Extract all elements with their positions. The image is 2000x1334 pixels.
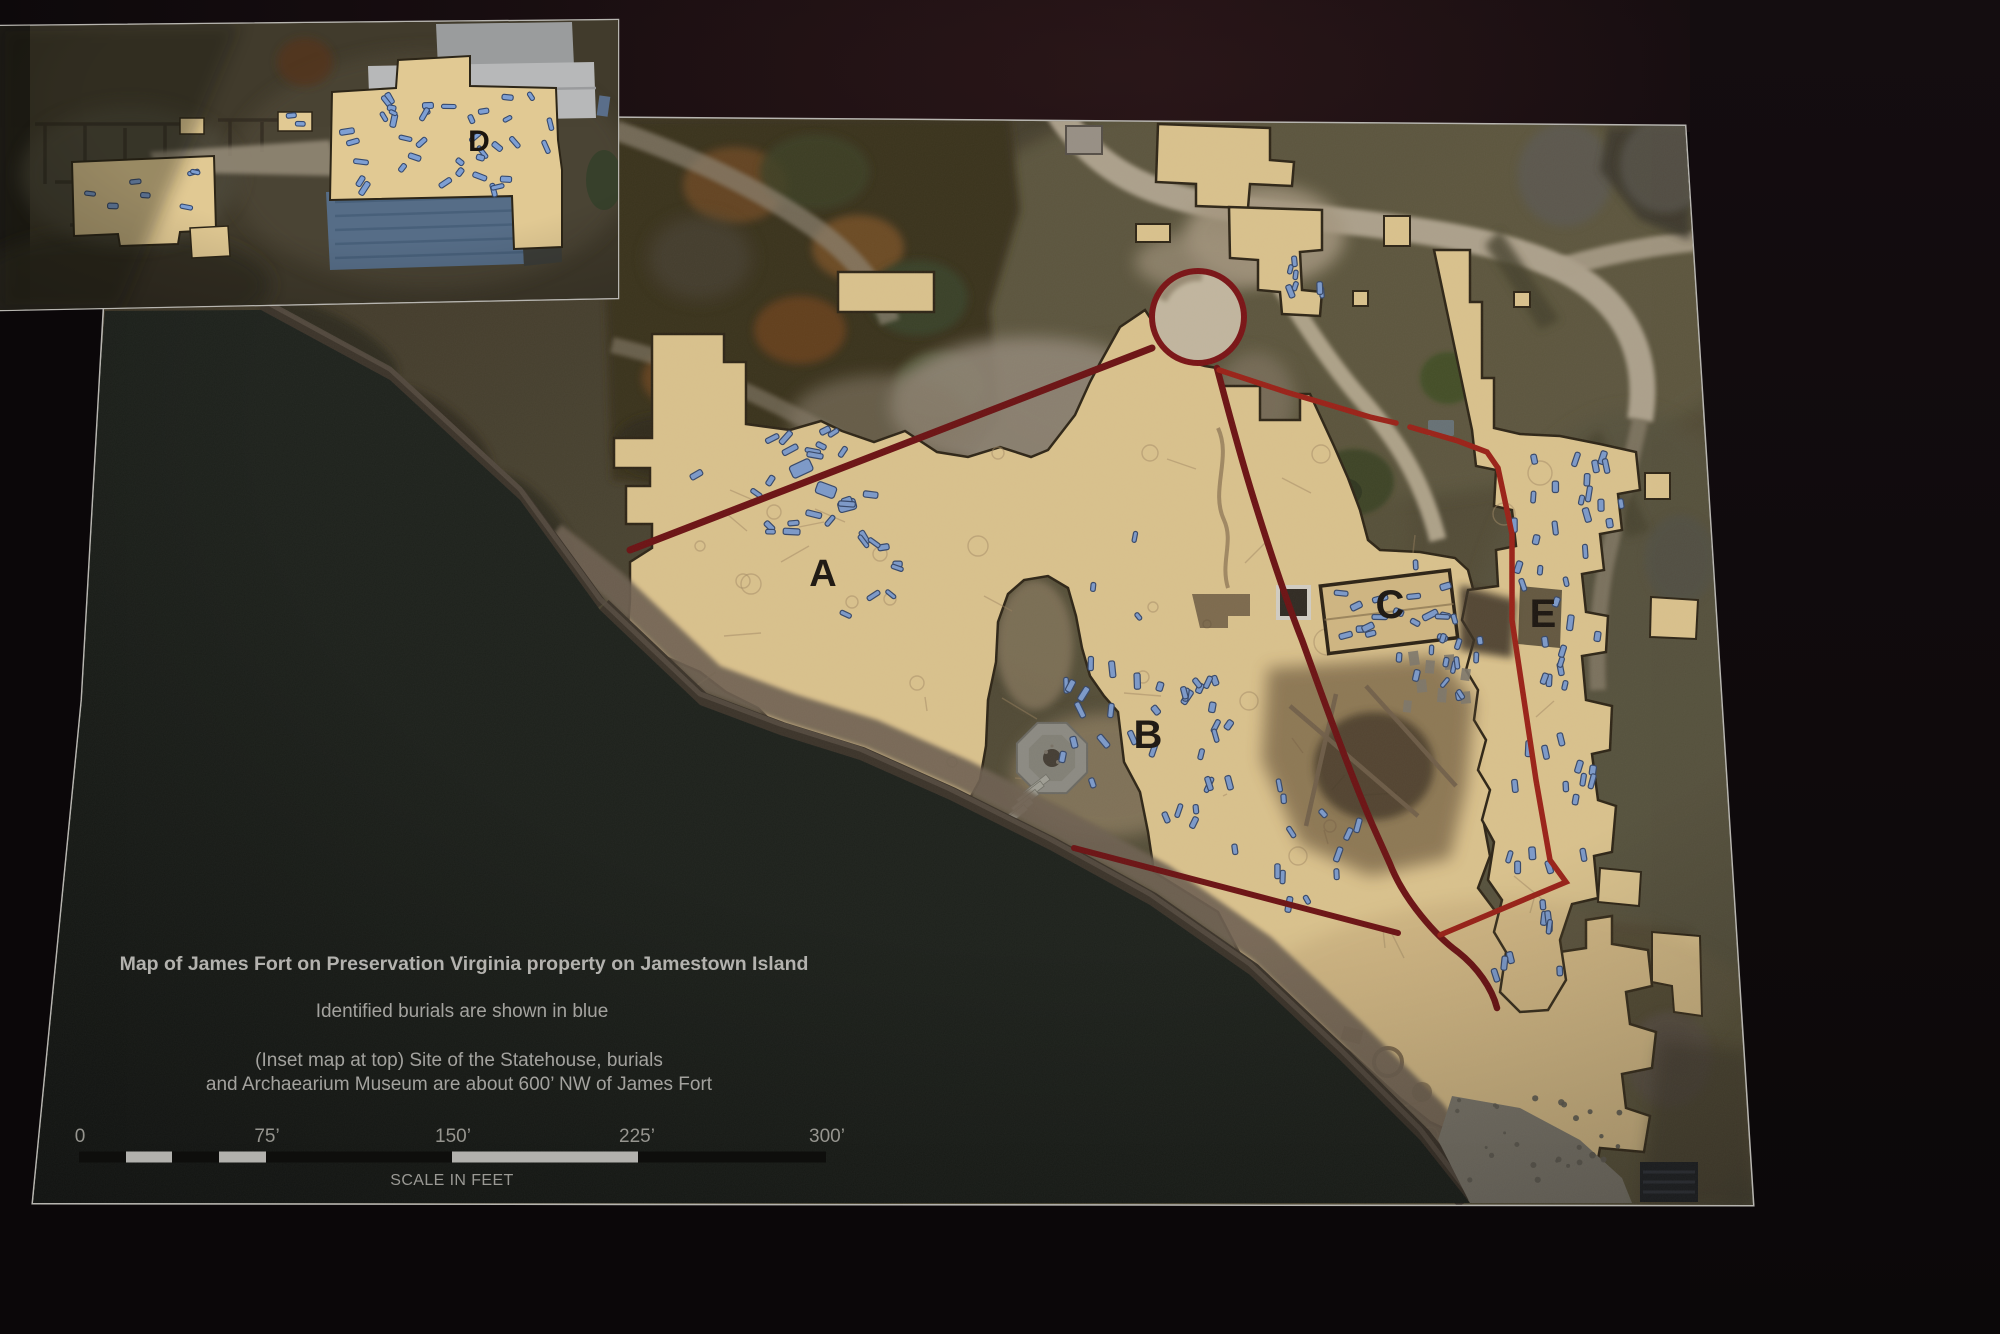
svg-text:Map of James Fort on Preservat: Map of James Fort on Preservation Virgin… <box>120 953 809 975</box>
svg-text:(Inset map at top) Site of the: (Inset map at top) Site of the Statehous… <box>255 1050 663 1071</box>
svg-text:0: 0 <box>75 1126 86 1147</box>
svg-text:225’: 225’ <box>619 1126 655 1147</box>
svg-text:and Archaearium Museum are abo: and Archaearium Museum are about 600’ NW… <box>206 1074 713 1095</box>
svg-text:SCALE IN FEET: SCALE IN FEET <box>390 1172 513 1189</box>
svg-text:Identified burials are shown i: Identified burials are shown in blue <box>316 1001 609 1022</box>
svg-text:75’: 75’ <box>254 1126 279 1147</box>
svg-text:150’: 150’ <box>435 1126 471 1147</box>
svg-text:300’: 300’ <box>809 1126 845 1147</box>
